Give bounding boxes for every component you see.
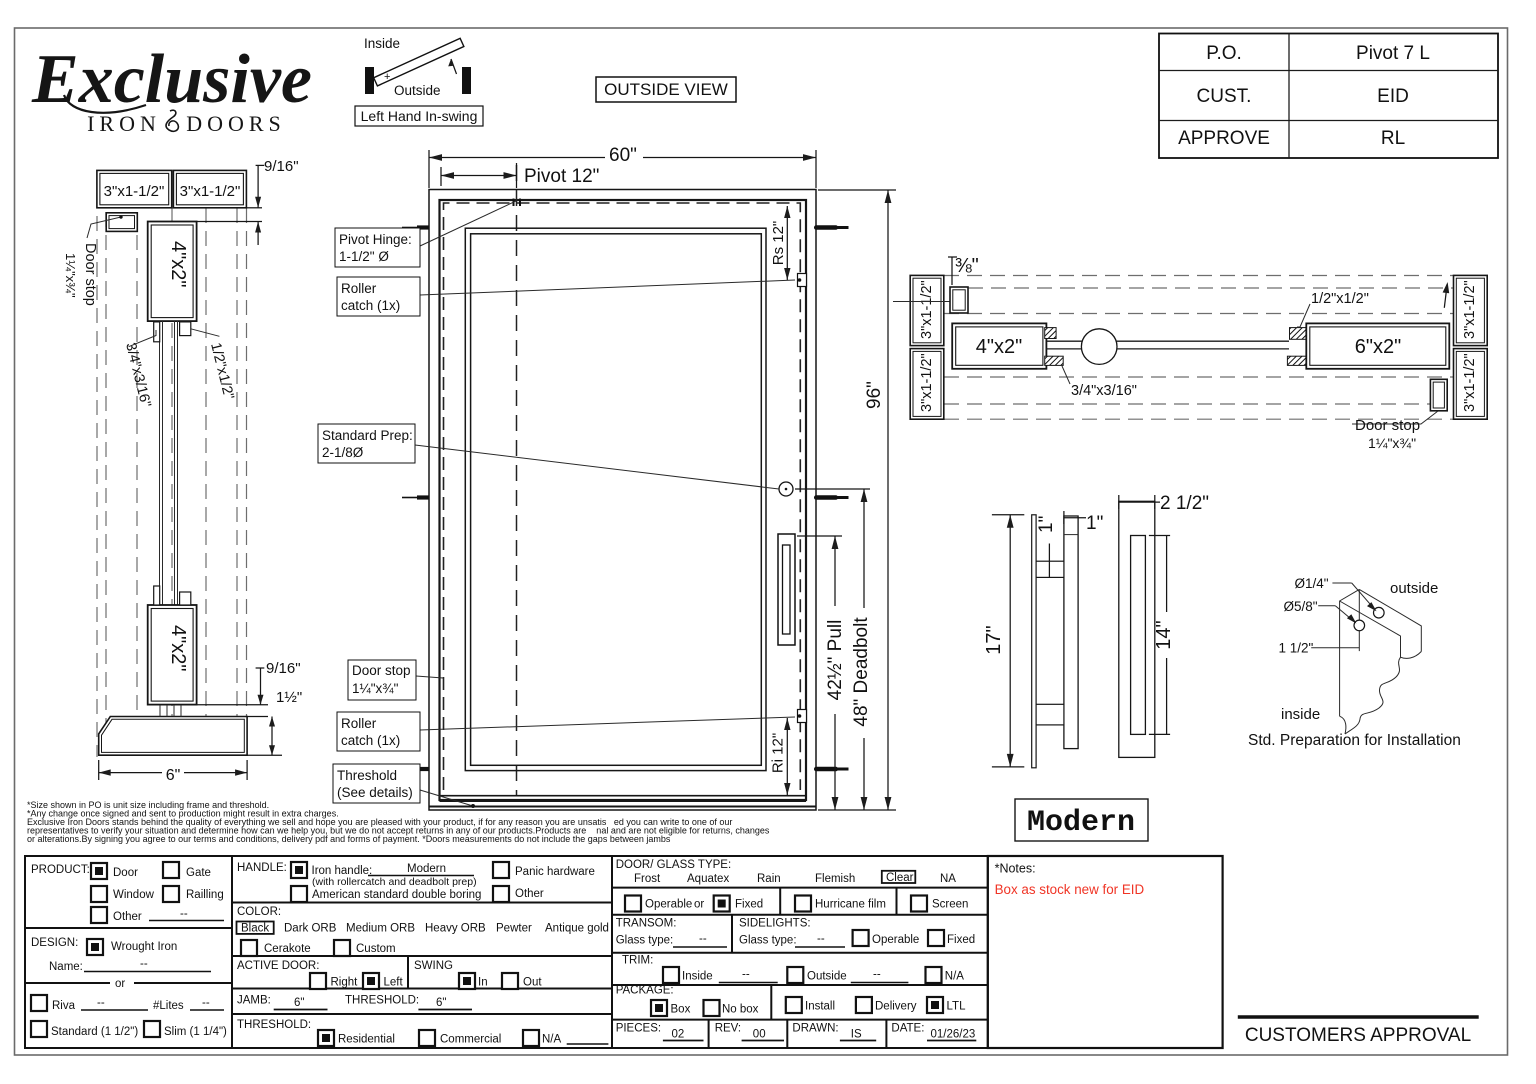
svg-text:3"x1-1/2": 3"x1-1/2" bbox=[919, 353, 935, 412]
svg-text:⅜": ⅜" bbox=[955, 255, 979, 277]
svg-text:N/A: N/A bbox=[542, 1034, 562, 1046]
svg-text:TRANSOM:: TRANSOM: bbox=[616, 918, 677, 930]
svg-text:6"x2": 6"x2" bbox=[1355, 336, 1401, 358]
svg-text:--: -- bbox=[97, 997, 105, 1009]
svg-text:THRESHOLD:: THRESHOLD: bbox=[345, 995, 419, 1007]
svg-text:DOORS: DOORS bbox=[186, 111, 286, 136]
svg-text:Standard (1 1/2"): Standard (1 1/2") bbox=[51, 1026, 138, 1038]
svg-text:Roller: Roller bbox=[341, 716, 377, 731]
svg-text:--: -- bbox=[202, 997, 210, 1009]
svg-text:1/2"x1/2": 1/2"x1/2" bbox=[1311, 291, 1369, 307]
svg-text:Antique gold: Antique gold bbox=[545, 923, 609, 935]
svg-text:or: or bbox=[694, 899, 704, 911]
svg-text:1/2"x1/2": 1/2"x1/2" bbox=[207, 341, 237, 401]
svg-text:--: -- bbox=[699, 933, 707, 945]
svg-text:Std. Preparation for Installat: Std. Preparation for Installation bbox=[1248, 732, 1461, 749]
svg-text:3/4"x3/16": 3/4"x3/16" bbox=[122, 341, 153, 409]
svg-text:Operable: Operable bbox=[645, 899, 692, 911]
svg-text:Glass type:: Glass type: bbox=[739, 935, 797, 947]
svg-text:DRAWN:: DRAWN: bbox=[792, 1023, 838, 1035]
svg-text:Dark ORB: Dark ORB bbox=[284, 923, 337, 935]
svg-text:--: -- bbox=[742, 969, 750, 981]
svg-text:Heavy ORB: Heavy ORB bbox=[425, 923, 486, 935]
svg-text:Panic hardware: Panic hardware bbox=[515, 866, 595, 878]
svg-text:Ø1/4": Ø1/4" bbox=[1295, 576, 1329, 591]
svg-text:DESIGN:: DESIGN: bbox=[31, 937, 78, 949]
svg-text:#Lites: #Lites bbox=[153, 1000, 184, 1012]
svg-text:Clear: Clear bbox=[886, 872, 914, 884]
svg-text:14": 14" bbox=[1153, 620, 1175, 649]
svg-text:1 1/2": 1 1/2" bbox=[1279, 641, 1314, 656]
svg-text:Roller: Roller bbox=[341, 281, 377, 296]
svg-text:or: or bbox=[115, 978, 125, 990]
svg-text:Outside: Outside bbox=[394, 83, 441, 98]
svg-text:Gate: Gate bbox=[186, 867, 211, 879]
svg-text:1-1/2" Ø: 1-1/2" Ø bbox=[339, 249, 389, 264]
svg-text:DOOR/ GLASS TYPE:: DOOR/ GLASS TYPE: bbox=[616, 859, 731, 871]
svg-text:Fixed: Fixed bbox=[947, 934, 975, 946]
svg-text:Left Hand In-swing: Left Hand In-swing bbox=[361, 108, 478, 124]
svg-text:(See details): (See details) bbox=[337, 785, 413, 800]
svg-text:3"x1-1/2": 3"x1-1/2" bbox=[919, 280, 935, 339]
svg-text:IS: IS bbox=[851, 1029, 862, 1041]
svg-text:catch (1x): catch (1x) bbox=[341, 733, 400, 748]
svg-text:Door: Door bbox=[113, 867, 138, 879]
svg-text:Glass type:: Glass type: bbox=[616, 935, 674, 947]
svg-text:REV:: REV: bbox=[715, 1023, 741, 1035]
svg-text:ACTIVE DOOR:: ACTIVE DOOR: bbox=[237, 960, 319, 972]
svg-text:Name:: Name: bbox=[49, 961, 83, 973]
svg-text:Threshold: Threshold bbox=[337, 768, 397, 783]
svg-text:02: 02 bbox=[672, 1029, 685, 1041]
svg-text:SIDELIGHTS:: SIDELIGHTS: bbox=[739, 918, 811, 930]
svg-text:outside: outside bbox=[1390, 580, 1438, 597]
svg-text:2-1/8Ø: 2-1/8Ø bbox=[322, 445, 364, 460]
svg-text:Screen: Screen bbox=[932, 899, 968, 911]
svg-text:Operable: Operable bbox=[872, 934, 919, 946]
svg-text:Other: Other bbox=[113, 911, 142, 923]
svg-text:1¼"x¾": 1¼"x¾" bbox=[352, 681, 399, 696]
svg-text:IRON: IRON bbox=[87, 111, 161, 136]
svg-text:Medium ORB: Medium ORB bbox=[346, 923, 415, 935]
svg-text:Pivot Hinge:: Pivot Hinge: bbox=[339, 232, 412, 247]
svg-text:9/16": 9/16" bbox=[264, 158, 299, 175]
svg-text:CUSTOMERS APPROVAL: CUSTOMERS APPROVAL bbox=[1245, 1025, 1471, 1046]
svg-text:Residential: Residential bbox=[338, 1034, 395, 1046]
svg-text:Pivot 7 L: Pivot 7 L bbox=[1356, 43, 1430, 64]
svg-text:P.O.: P.O. bbox=[1206, 43, 1242, 64]
svg-text:4"x2": 4"x2" bbox=[976, 336, 1022, 358]
svg-text:9/16": 9/16" bbox=[266, 660, 301, 677]
svg-text:--: -- bbox=[873, 969, 881, 981]
svg-text:Modern: Modern bbox=[407, 863, 446, 875]
svg-text:JAMB:: JAMB: bbox=[237, 995, 271, 1007]
svg-text:6": 6" bbox=[294, 997, 304, 1009]
svg-text:TRIM:: TRIM: bbox=[622, 955, 653, 967]
svg-text:Inside: Inside bbox=[682, 971, 713, 983]
svg-text:CUST.: CUST. bbox=[1197, 86, 1252, 107]
svg-text:In: In bbox=[478, 977, 488, 989]
svg-text:Box: Box bbox=[671, 1004, 691, 1016]
svg-text:01/26/23: 01/26/23 bbox=[931, 1029, 976, 1041]
svg-text:Flemish: Flemish bbox=[815, 873, 855, 885]
svg-text:Door stop: Door stop bbox=[352, 663, 411, 678]
svg-text:3"x1-1/2": 3"x1-1/2" bbox=[180, 183, 241, 200]
svg-text:APPROVE: APPROVE bbox=[1178, 128, 1270, 149]
svg-text:Door stop: Door stop bbox=[82, 243, 98, 306]
svg-text:2 1/2": 2 1/2" bbox=[1160, 493, 1209, 514]
svg-text:--: -- bbox=[140, 958, 148, 970]
svg-text:Other: Other bbox=[515, 888, 544, 900]
svg-text:LTL: LTL bbox=[947, 1001, 967, 1013]
svg-text:3"x1-1/2": 3"x1-1/2" bbox=[1462, 353, 1478, 412]
svg-text:Box as stock new for EID: Box as stock new for EID bbox=[995, 882, 1145, 897]
svg-text:Right: Right bbox=[331, 977, 359, 989]
svg-text:1¼"x¾": 1¼"x¾" bbox=[1368, 435, 1416, 451]
svg-text:+: + bbox=[384, 71, 390, 83]
svg-text:N/A: N/A bbox=[945, 971, 965, 983]
svg-text:Window: Window bbox=[113, 889, 155, 901]
svg-text:6": 6" bbox=[436, 997, 446, 1009]
svg-text:1": 1" bbox=[1086, 513, 1103, 534]
svg-text:American standard double borin: American standard double boring bbox=[312, 889, 481, 901]
svg-text:*Notes:: *Notes: bbox=[995, 862, 1036, 876]
svg-text:Cerakote: Cerakote bbox=[264, 943, 311, 955]
svg-text:catch (1x): catch (1x) bbox=[341, 298, 400, 313]
svg-text:Install: Install bbox=[805, 1001, 835, 1013]
svg-text:96": 96" bbox=[864, 381, 885, 409]
svg-text:00: 00 bbox=[753, 1029, 766, 1041]
svg-text:Door stop: Door stop bbox=[1355, 417, 1420, 434]
svg-text:EID: EID bbox=[1377, 86, 1409, 107]
svg-text:PACKAGE:: PACKAGE: bbox=[616, 985, 674, 997]
svg-text:RL: RL bbox=[1381, 128, 1405, 149]
svg-text:THRESHOLD:: THRESHOLD: bbox=[237, 1019, 311, 1031]
svg-text:Pivot 12": Pivot 12" bbox=[524, 166, 599, 187]
svg-text:Custom: Custom bbox=[356, 943, 396, 955]
svg-text:Slim (1 1/4"): Slim (1 1/4") bbox=[164, 1026, 227, 1038]
svg-text:Out: Out bbox=[523, 977, 542, 989]
svg-text:HANDLE:: HANDLE: bbox=[237, 862, 287, 874]
svg-text:Aquatex: Aquatex bbox=[687, 873, 729, 885]
svg-text:Wrought Iron: Wrought Iron bbox=[111, 941, 177, 953]
svg-text:Ø5/8": Ø5/8" bbox=[1284, 599, 1318, 614]
svg-text:Left: Left bbox=[384, 977, 404, 989]
svg-text:Modern: Modern bbox=[1027, 806, 1135, 840]
svg-text:3"x1-1/2": 3"x1-1/2" bbox=[104, 183, 165, 200]
svg-text:(with rollercatch and deadbolt: (with rollercatch and deadbolt prep) bbox=[312, 876, 477, 888]
svg-text:Outside: Outside bbox=[807, 971, 847, 983]
svg-text:60": 60" bbox=[609, 145, 637, 166]
svg-text:or alterations.By signing you: or alterations.By signing you agree to o… bbox=[27, 834, 671, 844]
svg-text:PIECES:: PIECES: bbox=[616, 1023, 661, 1035]
svg-text:inside: inside bbox=[1281, 706, 1320, 723]
svg-text:Rain: Rain bbox=[757, 873, 781, 885]
svg-text:Delivery: Delivery bbox=[875, 1001, 917, 1013]
svg-text:Railling: Railling bbox=[186, 889, 224, 901]
svg-text:Standard Prep:: Standard Prep: bbox=[322, 428, 413, 443]
svg-text:No box: No box bbox=[722, 1004, 759, 1016]
svg-text:Commercial: Commercial bbox=[440, 1034, 501, 1046]
svg-text:Black: Black bbox=[241, 923, 269, 935]
svg-text:4"x2": 4"x2" bbox=[167, 625, 189, 671]
svg-text:--: -- bbox=[180, 908, 188, 920]
svg-text:Riva: Riva bbox=[52, 1000, 76, 1012]
svg-text:1¼"x¾": 1¼"x¾" bbox=[63, 253, 78, 298]
svg-text:OUTSIDE VIEW: OUTSIDE VIEW bbox=[604, 80, 728, 99]
svg-text:Hurricane film: Hurricane film bbox=[815, 899, 886, 911]
svg-text:COLOR:: COLOR: bbox=[237, 906, 281, 918]
svg-text:SWING: SWING bbox=[414, 960, 453, 972]
svg-text:Fixed: Fixed bbox=[735, 899, 763, 911]
svg-text:1½": 1½" bbox=[276, 689, 302, 706]
svg-text:DATE:: DATE: bbox=[891, 1023, 924, 1035]
svg-text:17": 17" bbox=[983, 625, 1005, 654]
svg-text:--: -- bbox=[817, 933, 825, 945]
svg-text:Pewter: Pewter bbox=[496, 923, 532, 935]
svg-text:PRODUCT:: PRODUCT: bbox=[31, 864, 90, 876]
svg-text:4"x2": 4"x2" bbox=[167, 241, 189, 287]
svg-text:1": 1" bbox=[1036, 516, 1057, 533]
svg-text:Rs 12": Rs 12" bbox=[770, 221, 787, 266]
svg-text:Inside: Inside bbox=[364, 36, 400, 51]
svg-text:48" Deadbolt: 48" Deadbolt bbox=[851, 617, 872, 727]
svg-text:Frost: Frost bbox=[634, 873, 661, 885]
svg-text:3/4"x3/16": 3/4"x3/16" bbox=[1071, 383, 1137, 399]
svg-text:NA: NA bbox=[940, 873, 956, 885]
svg-text:42½" Pull: 42½" Pull bbox=[825, 620, 846, 701]
svg-text:3"x1-1/2": 3"x1-1/2" bbox=[1462, 280, 1478, 339]
svg-text:6": 6" bbox=[166, 767, 181, 784]
svg-text:Ri 12": Ri 12" bbox=[770, 733, 787, 773]
